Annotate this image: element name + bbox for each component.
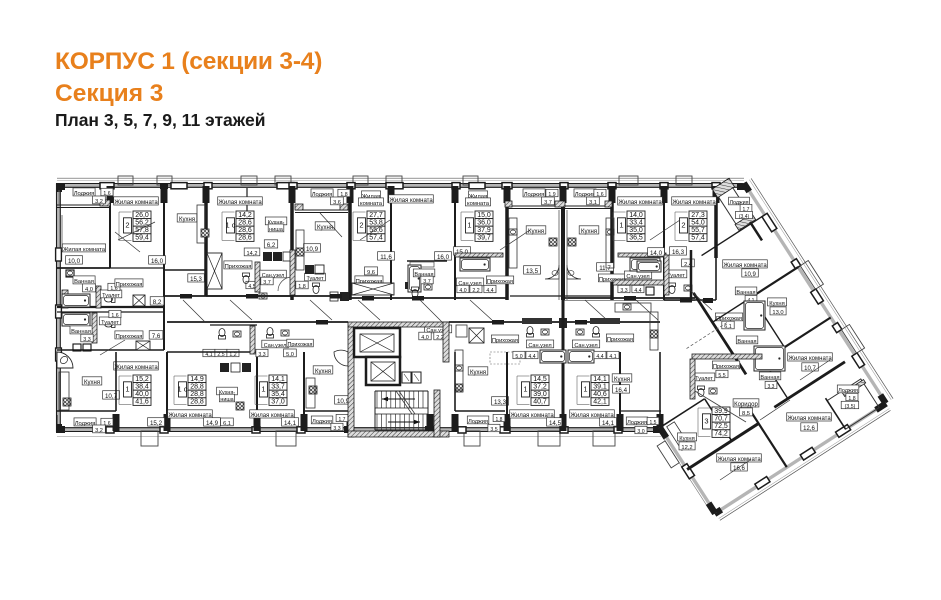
svg-text:Сан.узел: Сан.узел	[528, 343, 551, 349]
svg-text:11,6: 11,6	[380, 254, 392, 261]
svg-text:3,7: 3,7	[263, 280, 271, 286]
svg-text:2,2: 2,2	[472, 288, 479, 294]
svg-text:27,3: 27,3	[691, 212, 705, 219]
svg-text:комната: комната	[360, 201, 383, 207]
svg-text:7,6: 7,6	[152, 333, 161, 340]
svg-text:Ванная: Ванная	[737, 339, 756, 345]
svg-text:Жилая комната: Жилая комната	[672, 200, 716, 206]
svg-text:Жилая комната: Жилая комната	[389, 198, 433, 204]
svg-text:Жилая комната: Жилая комната	[114, 365, 158, 371]
svg-text:56,2: 56,2	[135, 220, 149, 227]
svg-text:4,4: 4,4	[634, 288, 641, 294]
svg-text:3,3: 3,3	[768, 384, 775, 390]
svg-text:16,0: 16,0	[151, 258, 164, 265]
svg-text:Лоджия: Лоджия	[468, 419, 488, 425]
svg-text:10,0: 10,0	[68, 258, 81, 265]
svg-text:14,5: 14,5	[549, 420, 562, 427]
svg-text:5,5: 5,5	[718, 373, 725, 379]
svg-text:13,3: 13,3	[494, 399, 507, 406]
svg-text:10,9: 10,9	[744, 272, 756, 278]
svg-text:14,0: 14,0	[629, 212, 643, 219]
svg-text:5,0: 5,0	[286, 352, 294, 358]
svg-text:ниша: ниша	[269, 227, 284, 233]
svg-text:Туалет: Туалет	[306, 276, 324, 282]
svg-text:33,7: 33,7	[271, 384, 285, 391]
svg-text:8,5: 8,5	[742, 411, 750, 417]
svg-text:28,8: 28,8	[190, 399, 204, 406]
svg-text:28,6: 28,6	[238, 235, 252, 242]
svg-text:1,7: 1,7	[339, 417, 346, 423]
svg-text:Жилая комната: Жилая комната	[787, 416, 831, 422]
svg-text:3,3: 3,3	[333, 426, 340, 432]
svg-text:Жилая комната: Жилая комната	[723, 263, 767, 269]
svg-text:Жилая комната: Жилая комната	[218, 200, 262, 206]
svg-text:4,4: 4,4	[528, 354, 535, 360]
svg-text:28,8: 28,8	[190, 391, 204, 398]
svg-text:13,5: 13,5	[526, 268, 539, 275]
svg-text:Лоджия: Лоджия	[524, 192, 545, 198]
svg-text:2: 2	[681, 220, 685, 229]
svg-text:14,1: 14,1	[271, 376, 285, 383]
svg-text:Кухня: Кухня	[614, 377, 630, 383]
svg-text:3,3: 3,3	[620, 288, 627, 294]
svg-text:8,2: 8,2	[153, 299, 162, 306]
svg-text:Коридор: Коридор	[734, 402, 758, 408]
svg-text:28,8: 28,8	[190, 384, 204, 391]
svg-text:16,3: 16,3	[672, 249, 685, 256]
svg-text:2: 2	[359, 220, 363, 229]
svg-text:42,1: 42,1	[593, 399, 607, 406]
svg-text:3,6: 3,6	[333, 200, 341, 206]
svg-text:14,2: 14,2	[247, 251, 258, 257]
svg-text:55,6: 55,6	[369, 227, 383, 234]
svg-text:15,0: 15,0	[477, 212, 491, 219]
svg-text:10,7: 10,7	[804, 366, 816, 372]
svg-text:3,0: 3,0	[637, 429, 644, 435]
svg-text:37,0: 37,0	[271, 399, 285, 406]
svg-text:Кухня: Кухня	[179, 217, 195, 223]
svg-text:Жилая комната: Жилая комната	[114, 200, 158, 206]
svg-text:Кухня: Кухня	[528, 229, 544, 235]
svg-text:54,0: 54,0	[691, 220, 705, 227]
svg-text:Жилая комната: Жилая комната	[788, 356, 832, 362]
svg-text:36,0: 36,0	[477, 220, 491, 227]
svg-text:Прихожая: Прихожая	[492, 338, 518, 344]
svg-text:11,7: 11,7	[599, 265, 611, 272]
svg-text:28,6: 28,6	[238, 227, 252, 234]
svg-text:3,3: 3,3	[258, 352, 265, 358]
svg-text:27,7: 27,7	[369, 212, 383, 219]
svg-text:Лоджия: Лоджия	[312, 419, 332, 425]
svg-text:9,6: 9,6	[367, 270, 375, 276]
svg-text:35,0: 35,0	[629, 227, 643, 234]
svg-text:Кухня: Кухня	[679, 436, 695, 442]
svg-text:6,1: 6,1	[724, 324, 732, 330]
svg-text:16,4: 16,4	[615, 387, 628, 394]
svg-text:14,9: 14,9	[206, 420, 219, 427]
svg-text:53,8: 53,8	[369, 220, 383, 227]
svg-text:4,0: 4,0	[459, 288, 466, 294]
svg-text:38,4: 38,4	[135, 384, 149, 391]
svg-text:57,4: 57,4	[691, 235, 705, 242]
svg-text:3,1: 3,1	[589, 200, 597, 206]
svg-text:Ванная: Ванная	[760, 375, 779, 381]
svg-text:15,3: 15,3	[190, 277, 202, 283]
svg-text:1 с: 1 с	[225, 220, 235, 229]
svg-text:1,6: 1,6	[111, 313, 118, 319]
svg-text:(3,4): (3,4)	[739, 214, 750, 220]
svg-text:40,6: 40,6	[593, 391, 607, 398]
svg-text:(3,5): (3,5)	[845, 404, 856, 410]
svg-text:Прихожая: Прихожая	[116, 334, 143, 340]
svg-text:39,0: 39,0	[533, 391, 547, 398]
svg-text:14,5: 14,5	[533, 376, 547, 383]
svg-text:39,1: 39,1	[593, 384, 607, 391]
svg-text:3,3: 3,3	[83, 337, 91, 343]
svg-text:36,5: 36,5	[629, 235, 643, 242]
svg-text:Прихожая: Прихожая	[607, 337, 633, 343]
svg-text:Туалет: Туалет	[695, 376, 713, 382]
svg-text:16,0: 16,0	[437, 254, 450, 261]
svg-text:Лоджия: Лоджия	[627, 420, 647, 426]
svg-text:Жилая комната: Жилая комната	[618, 200, 662, 206]
svg-text:Кухня: Кухня	[581, 229, 597, 235]
svg-text:37,9: 37,9	[477, 227, 491, 234]
svg-text:Сан.узел: Сан.узел	[574, 343, 597, 349]
svg-text:Прихожая: Прихожая	[288, 342, 313, 348]
svg-text:59,4: 59,4	[135, 235, 149, 242]
svg-text:14,2: 14,2	[238, 212, 252, 219]
svg-text:1: 1	[583, 384, 587, 393]
svg-text:33,4: 33,4	[629, 220, 643, 227]
svg-text:Жилая комната: Жилая комната	[63, 247, 106, 253]
svg-text:1: 1	[125, 384, 129, 393]
svg-text:13,0: 13,0	[772, 310, 783, 316]
svg-text:Лоджия: Лоджия	[75, 421, 96, 427]
svg-text:6,1: 6,1	[223, 421, 231, 427]
svg-text:3,2: 3,2	[95, 199, 103, 205]
svg-text:Туалет: Туалет	[667, 273, 685, 279]
svg-text:14,9: 14,9	[190, 376, 204, 383]
svg-text:28,6: 28,6	[238, 220, 252, 227]
svg-text:3,5: 3,5	[490, 427, 497, 433]
svg-text:72,5: 72,5	[714, 423, 728, 430]
svg-text:1: 1	[523, 384, 527, 393]
svg-text:1,8: 1,8	[298, 284, 306, 290]
svg-text:26,0: 26,0	[135, 212, 149, 219]
svg-text:Прихожая: Прихожая	[713, 364, 739, 370]
svg-text:40,0: 40,0	[135, 391, 149, 398]
svg-text:35,4: 35,4	[271, 391, 285, 398]
svg-text:5,0: 5,0	[515, 354, 522, 360]
svg-text:1,8: 1,8	[496, 417, 503, 423]
svg-text:4,1: 4,1	[609, 354, 616, 360]
svg-text:3: 3	[704, 416, 708, 425]
svg-text:Прихожая: Прихожая	[487, 279, 513, 285]
svg-text:3,7: 3,7	[544, 200, 552, 206]
svg-text:Лоджия: Лоджия	[312, 192, 333, 198]
svg-text:1: 1	[467, 220, 471, 229]
svg-text:Кухня: Кухня	[84, 380, 100, 386]
svg-text:14,0: 14,0	[650, 250, 663, 257]
svg-text:6,2: 6,2	[267, 243, 276, 249]
svg-text:Кухня: Кухня	[769, 301, 785, 307]
svg-text:12,2: 12,2	[681, 445, 692, 451]
svg-text:Лоджия: Лоджия	[74, 191, 95, 197]
svg-text:2: 2	[125, 220, 129, 229]
svg-text:Сан.узел: Сан.узел	[626, 274, 649, 280]
svg-text:14,1: 14,1	[602, 420, 615, 427]
svg-text:Туалет: Туалет	[101, 320, 119, 326]
svg-text:57,4: 57,4	[369, 235, 383, 242]
svg-text:Кухня: Кухня	[470, 370, 486, 376]
svg-text:Туалет: Туалет	[102, 293, 120, 299]
svg-text:3,2: 3,2	[95, 428, 103, 434]
svg-text:1,8: 1,8	[848, 396, 855, 402]
svg-text:37,2: 37,2	[533, 384, 547, 391]
svg-text:Сан.узел: Сан.узел	[264, 343, 287, 349]
svg-text:39,9: 39,9	[714, 408, 728, 415]
svg-text:4,0: 4,0	[85, 287, 93, 293]
svg-text:1,5: 1,5	[650, 420, 657, 426]
svg-text:10,9: 10,9	[306, 246, 319, 253]
svg-text:Кухня: Кухня	[317, 225, 333, 231]
svg-text:39,7: 39,7	[477, 235, 491, 242]
svg-text:4,4: 4,4	[486, 288, 493, 294]
svg-text:1: 1	[261, 384, 265, 393]
svg-text:12,6: 12,6	[803, 426, 815, 432]
svg-text:14,1: 14,1	[284, 420, 297, 427]
svg-text:70,7: 70,7	[714, 416, 728, 423]
svg-text:комната: комната	[467, 201, 490, 207]
svg-text:4,4: 4,4	[596, 354, 603, 360]
svg-text:40,7: 40,7	[533, 399, 547, 406]
svg-text:Кухня: Кухня	[315, 369, 331, 375]
svg-text:Прихожая: Прихожая	[116, 282, 143, 288]
svg-text:Прихожая: Прихожая	[225, 264, 252, 270]
svg-text:55,7: 55,7	[691, 227, 705, 234]
svg-text:ниша: ниша	[220, 397, 233, 403]
svg-text:15,2: 15,2	[150, 420, 163, 427]
svg-text:74,2: 74,2	[714, 431, 728, 438]
svg-text:Жилая комната: Жилая комната	[717, 457, 761, 463]
svg-text:4,0: 4,0	[421, 335, 429, 341]
svg-text:1: 1	[619, 220, 623, 229]
svg-text:1 с: 1 с	[177, 384, 187, 393]
svg-text:41,6: 41,6	[135, 399, 149, 406]
svg-text:14,1: 14,1	[593, 376, 607, 383]
svg-text:15,2: 15,2	[135, 376, 149, 383]
